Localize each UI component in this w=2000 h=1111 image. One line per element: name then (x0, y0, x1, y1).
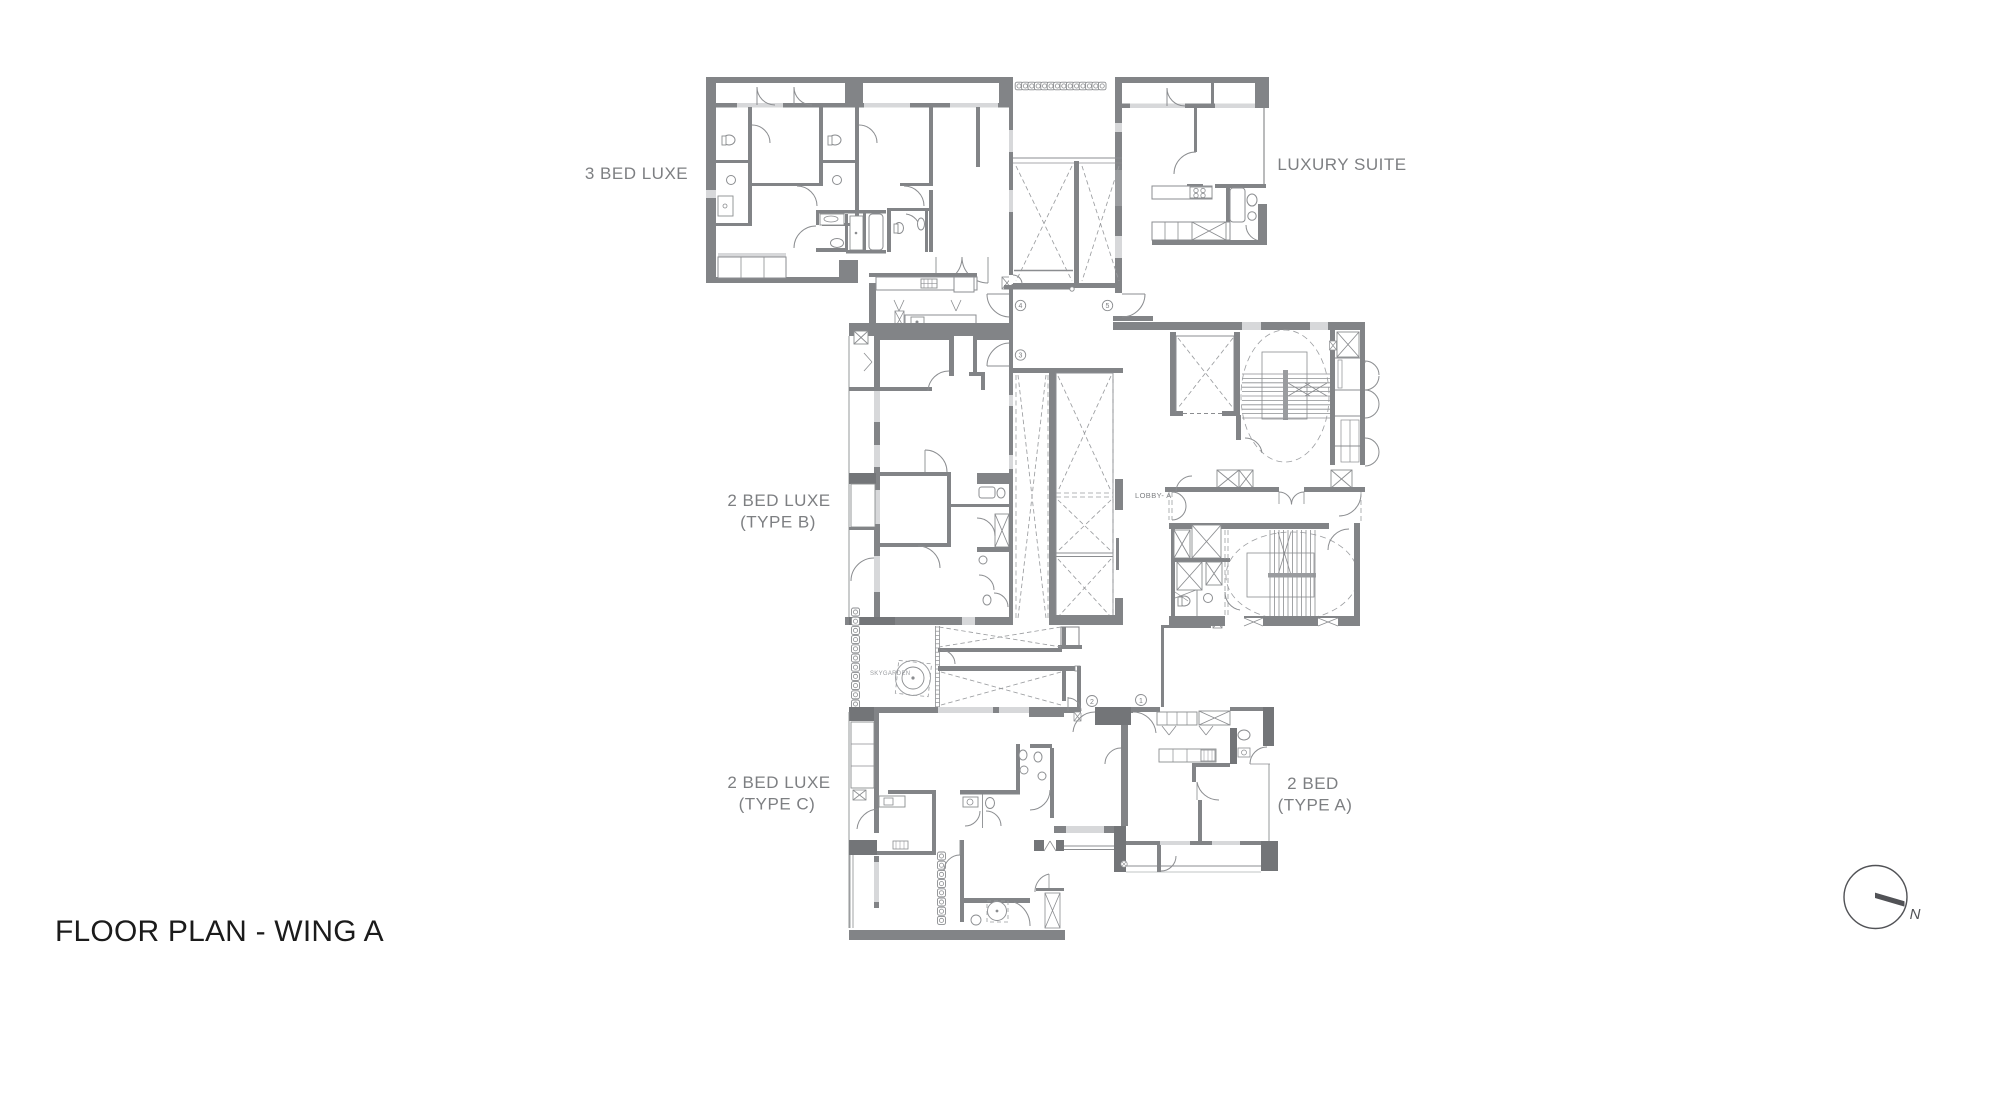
svg-text:1: 1 (1139, 698, 1143, 705)
svg-text:LOBBY- A: LOBBY- A (1135, 491, 1172, 500)
svg-text:(TYPE A): (TYPE A) (1278, 796, 1353, 815)
svg-text:2 BED LUXE: 2 BED LUXE (727, 491, 830, 510)
svg-text:LUXURY SUITE: LUXURY SUITE (1277, 155, 1406, 174)
svg-text:(TYPE B): (TYPE B) (740, 513, 816, 532)
svg-text:2 BED LUXE: 2 BED LUXE (727, 773, 830, 792)
svg-text:SKYGARDEN: SKYGARDEN (870, 671, 910, 677)
svg-text:3: 3 (1019, 353, 1023, 360)
svg-text:4: 4 (1019, 303, 1023, 310)
svg-text:2 BED: 2 BED (1287, 774, 1339, 793)
svg-text:FLOOR PLAN - WING A: FLOOR PLAN - WING A (55, 915, 384, 948)
svg-text:N: N (1910, 906, 1921, 923)
svg-text:3 BED LUXE: 3 BED LUXE (585, 164, 688, 183)
svg-text:5: 5 (1106, 303, 1110, 310)
svg-text:2: 2 (1090, 699, 1094, 706)
svg-text:(TYPE C): (TYPE C) (739, 795, 816, 814)
